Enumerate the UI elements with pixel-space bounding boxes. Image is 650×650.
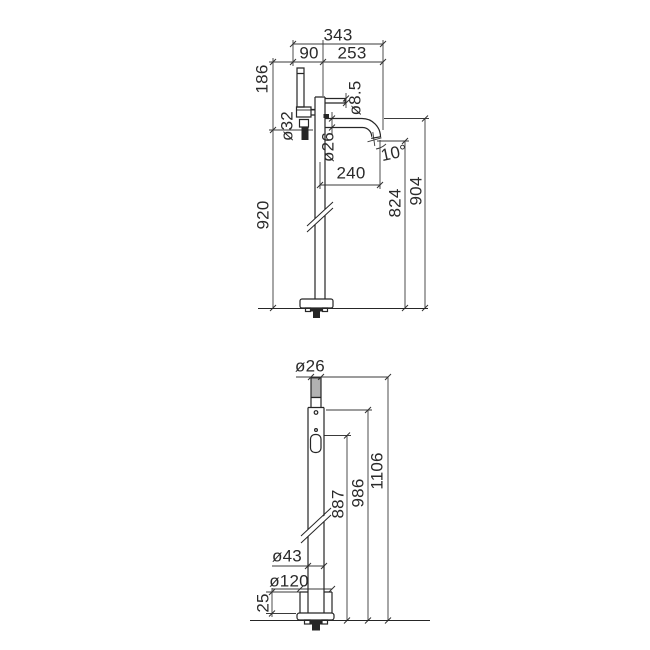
dim-side-base-diameter: ø120: [269, 573, 309, 590]
dim-front-total-height: 920: [255, 201, 272, 230]
dim-front-outlet-height: 824: [387, 189, 404, 218]
dim-side-handshower-diameter: ø26: [295, 358, 325, 375]
dim-front-head-height: 186: [254, 65, 271, 94]
dim-front-left-offset: 90: [299, 45, 318, 62]
dim-front-spout-reach: 240: [337, 165, 366, 182]
dim-front-spout-diameter: ø26: [320, 132, 337, 162]
drawing-linework: [0, 0, 650, 650]
dim-side-column-diameter: ø43: [272, 548, 302, 565]
dim-side-total-height: 1106: [369, 452, 386, 489]
dim-front-column-diameter: ø32: [279, 111, 296, 141]
dim-front-lever-diameter: ø8.5: [347, 81, 364, 116]
dim-front-spout-top-height: 904: [408, 177, 425, 206]
dim-front-right-offset: 253: [338, 45, 367, 62]
dim-front-total-width: 343: [324, 27, 353, 44]
dim-side-body-top-height: 986: [350, 479, 367, 508]
technical-drawing-canvas: 343 90 253 186 920 ø32 ø8.5 ø26 240 10° …: [0, 0, 650, 650]
dim-side-base-plate-height: 25: [255, 593, 272, 612]
dim-side-lever-height: 887: [330, 490, 347, 519]
